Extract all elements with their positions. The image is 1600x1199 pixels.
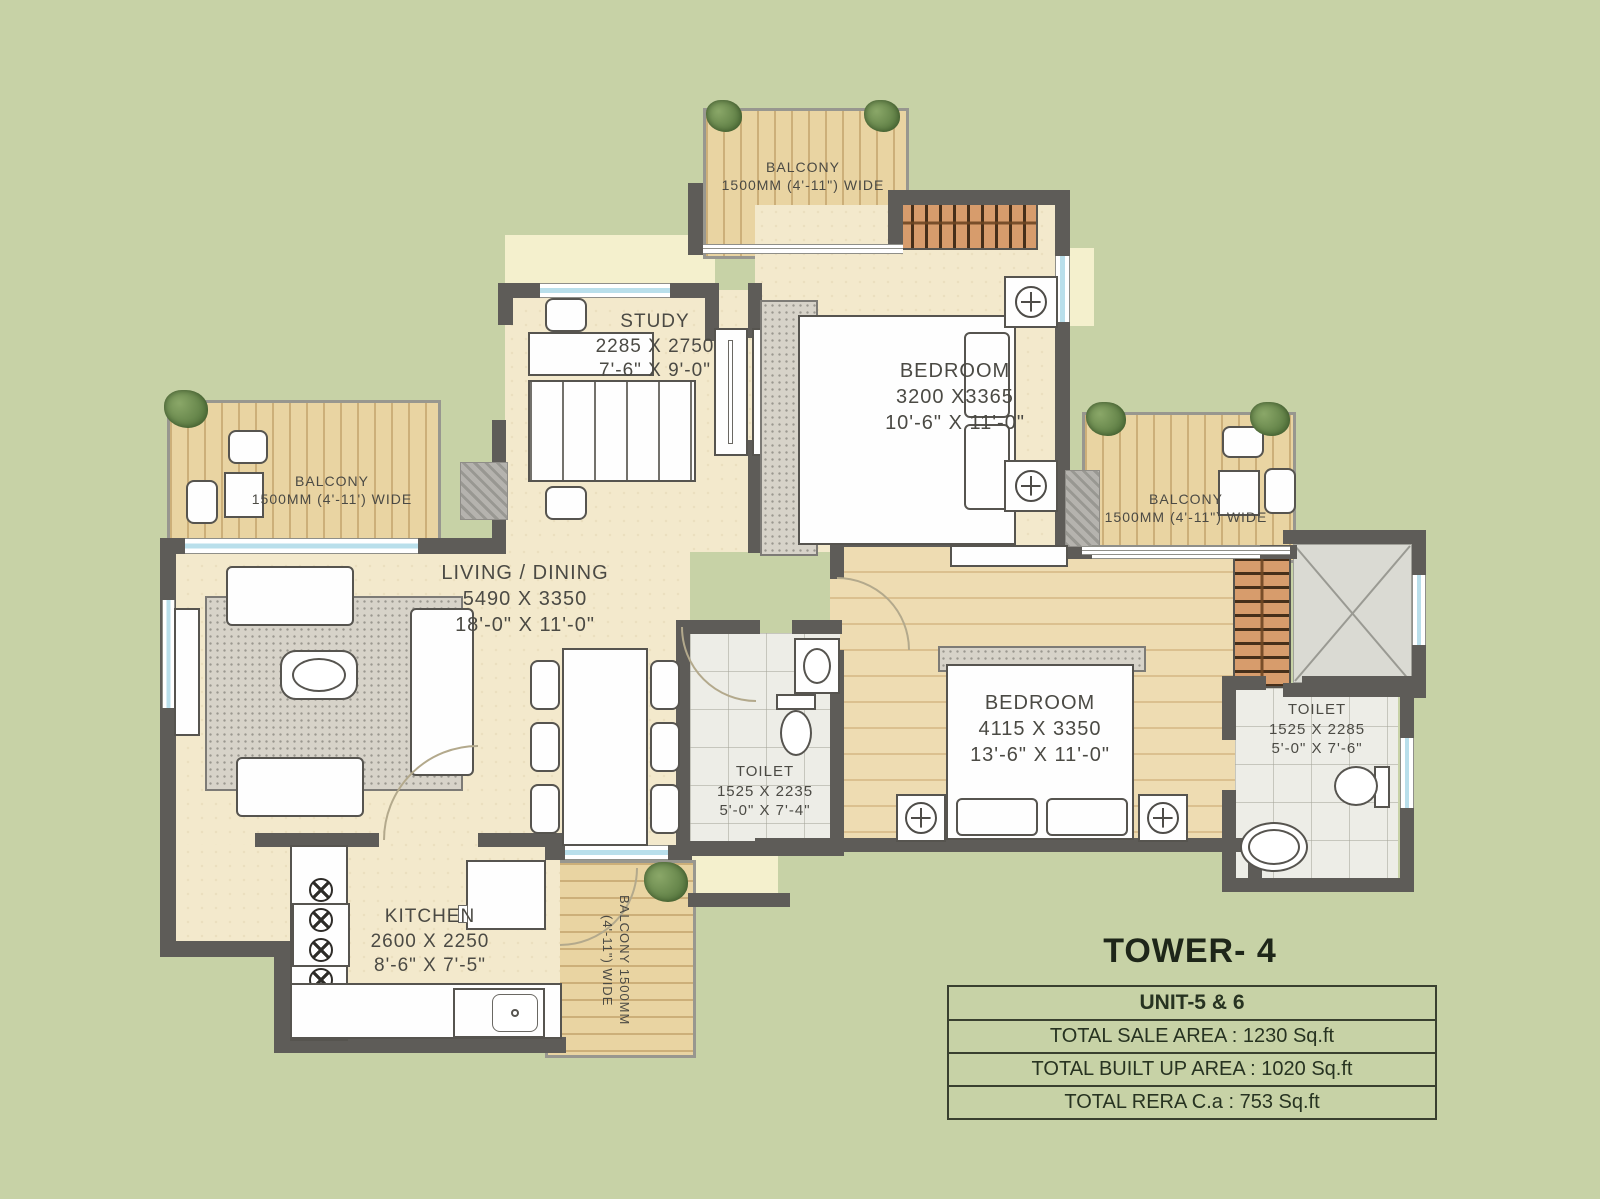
toilet-center-dim-mm: 1525 X 2235 [690,782,840,802]
planter [1086,402,1126,436]
wall-segment [830,545,844,579]
toilet-right-dim-ft: 5'-0" X 7'-6" [1242,739,1392,759]
kitchen-dim-ft: 8'-6" X 7'-5" [330,954,530,979]
study-dim-ft: 7'-6" X 9'-0" [540,359,770,384]
wall-segment [1283,530,1426,544]
study-dim-mm: 2285 X 2750 [540,335,770,360]
wall-segment [792,620,842,634]
wc-bowl [780,710,812,756]
bedroom2-dim-ft: 13'-6" X 11'-0" [925,742,1155,768]
burner-icon [309,878,333,902]
bedroom2-pillow [956,798,1038,836]
balcony-left-name: BALCONY [232,472,432,490]
balcony-right-name: BALCONY [1086,490,1286,508]
toilet-right-name: TOILET [1242,700,1392,720]
balcony-top-size: 1500MM (4'-11") WIDE [698,176,908,194]
dining-chair [530,784,560,834]
tower-title: TOWER- 4 [945,932,1435,971]
toilet-right-label: TOILET 1525 X 2285 5'-0" X 7'-6" [1242,700,1392,759]
planter [706,100,742,132]
balcony-top-label: BALCONY 1500MM (4'-11") WIDE [698,158,908,194]
balcony-left-label: BALCONY 1500MM (4'-11') WIDE [232,472,432,508]
lift-cross-icon [1293,544,1412,683]
kitchen-dim-mm: 2600 X 2250 [330,930,530,955]
lamp-icon [1015,286,1047,318]
entry-floor [167,845,287,945]
floor-plan-canvas: STUDY 2285 X 2750 7'-6" X 9'-0" BEDROOM … [0,0,1600,1199]
dining-chair [650,660,680,710]
study-name: STUDY [540,310,770,335]
dining-chair [650,784,680,834]
built-up-area-row: TOTAL BUILT UP AREA : 1020 Sq.ft [949,1054,1435,1087]
dining-chair [530,722,560,772]
planter [1250,402,1290,436]
toilet-center-dim-ft: 5'-0" X 7'-4" [690,801,840,821]
bedroom2-pillow [1046,798,1128,836]
window [185,538,418,554]
study-bed [528,380,696,482]
sofa-two-seater-bottom [236,757,364,817]
wall-segment [160,941,290,957]
balcony-door-sill [1082,546,1290,555]
washbasin-bowl [803,648,831,684]
lamp-icon [905,802,937,834]
living-dim-mm: 5490 X 3350 [395,586,655,612]
toilet-center-label: TOILET 1525 X 2235 5'-0" X 7'-4" [690,762,840,821]
bedroom2-name: BEDROOM [925,690,1155,716]
toilet-right-dim-mm: 1525 X 2285 [1242,720,1392,740]
bedroom2-dim-mm: 4115 X 3350 [925,716,1155,742]
window [565,845,668,860]
bedroom1-dim-mm: 3200 X3365 [840,384,1070,410]
dining-chair [530,660,560,710]
lamp-icon [1147,802,1179,834]
living-name: LIVING / DINING [395,560,655,586]
wall-segment [888,190,1070,205]
bedroom1-name: BEDROOM [840,358,1070,384]
planter [164,390,208,428]
wall-segment [688,893,790,907]
kitchen-label: KITCHEN 2600 X 2250 8'-6" X 7'-5" [330,905,530,979]
bedroom1-label: BEDROOM 3200 X3365 10'-6" X 11'-0" [840,358,1070,436]
sofa-two-seater-top [226,566,354,626]
balcony-bottom-name: BALCONY [617,895,632,964]
balcony-door-sill [703,244,903,254]
tv-unit [174,608,200,736]
balcony-left-size: 1500MM (4'-11') WIDE [232,490,432,508]
wall-segment [1302,676,1412,690]
wall-segment [1055,190,1070,260]
window [1412,575,1426,645]
dining-chair [650,722,680,772]
living-dining-label: LIVING / DINING 5490 X 3350 18'-0" X 11'… [395,560,655,638]
unit-info-table: UNIT-5 & 6 TOTAL SALE AREA : 1230 Sq.ft … [947,985,1437,1120]
balcony-bottom-label: BALCONY 1500MM (4'-11") WIDE [598,878,632,1043]
living-dim-ft: 18'-0" X 11'-0" [395,612,655,638]
unit-header: UNIT-5 & 6 [949,987,1435,1021]
wall-segment [498,283,513,325]
rera-area-row: TOTAL RERA C.a : 753 Sq.ft [949,1087,1435,1118]
balcony-right-size: 1500MM (4'-11") WIDE [1086,508,1286,526]
toilet-center-name: TOILET [690,762,840,782]
window [540,283,670,298]
kitchen-name: KITCHEN [330,905,530,930]
balcony-chair [228,430,268,464]
balcony-chair [186,480,218,524]
planter [864,100,900,132]
coffee-table-top [292,658,346,692]
dining-table [562,648,648,846]
bedroom2-label: BEDROOM 4115 X 3350 13'-6" X 11'-0" [925,690,1155,768]
bathtub-inner [1248,829,1300,865]
balcony-top-name: BALCONY [698,158,908,176]
wc-bowl [1334,766,1378,806]
column [460,462,508,520]
wall-segment [1222,676,1236,740]
kitchen-sink-drain [511,1009,519,1017]
wardrobe-bedroom2 [1233,545,1291,688]
window [1400,738,1414,808]
study-label: STUDY 2285 X 2750 7'-6" X 9'-0" [540,310,770,384]
balcony-right-label: BALCONY 1500MM (4'-11") WIDE [1086,490,1286,526]
wall-segment [888,190,903,252]
adjacent-area-patch [688,856,778,894]
planter [644,862,688,902]
lamp-icon [1015,470,1047,502]
study-chair [545,486,587,520]
bedroom1-dim-ft: 10'-6" X 11'-0" [840,410,1070,436]
tv-console [950,545,1068,567]
wc-tank [776,694,816,710]
sale-area-row: TOTAL SALE AREA : 1230 Sq.ft [949,1021,1435,1054]
